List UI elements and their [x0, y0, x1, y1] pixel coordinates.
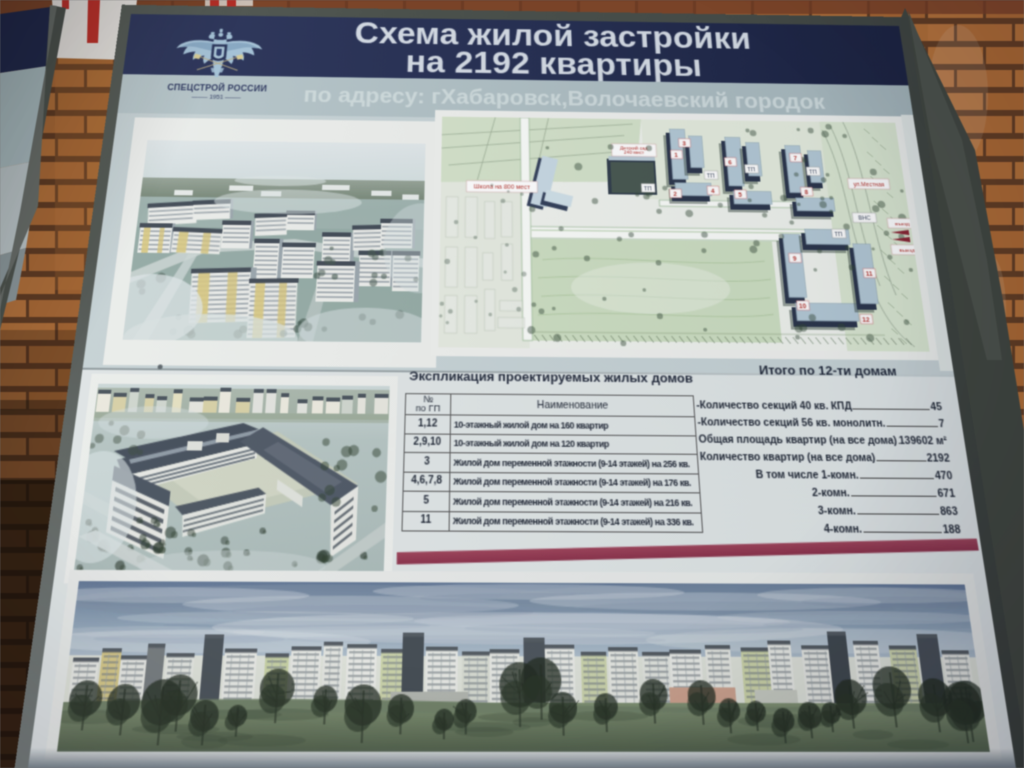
svg-text:9: 9 [793, 256, 797, 263]
svg-text:выезд: выезд [899, 249, 915, 255]
svg-text:ТП: ТП [809, 170, 818, 176]
svg-text:6: 6 [728, 160, 732, 166]
svg-text:ТП: ТП [747, 167, 755, 173]
svg-text:2: 2 [673, 192, 677, 198]
svg-text:въезд: въезд [895, 222, 910, 228]
svg-text:10: 10 [799, 304, 807, 311]
svg-text:8: 8 [804, 190, 808, 196]
svg-text:12: 12 [862, 317, 870, 324]
svg-text:Школа на 800 мест: Школа на 800 мест [474, 184, 531, 191]
svg-text:ТП: ТП [834, 232, 843, 239]
svg-text:ТП: ТП [644, 186, 652, 192]
svg-text:ТП: ТП [707, 173, 715, 179]
svg-text:3: 3 [682, 141, 686, 147]
svg-text:7: 7 [793, 156, 797, 162]
svg-text:ВНС: ВНС [858, 216, 871, 223]
svg-text:240 мест: 240 мест [624, 150, 645, 155]
svg-text:ул.Местная: ул.Местная [853, 182, 885, 189]
